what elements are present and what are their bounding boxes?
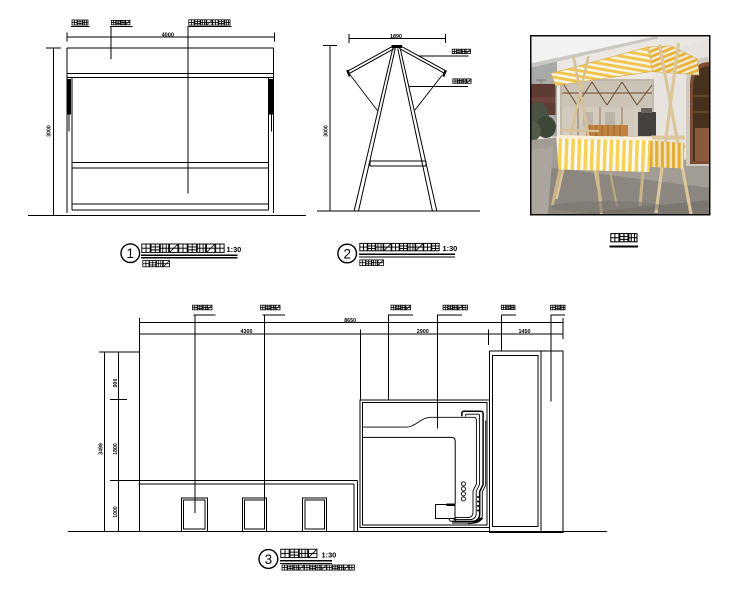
svg-text:1:30: 1:30 bbox=[227, 245, 242, 254]
svg-text:1890: 1890 bbox=[390, 34, 402, 40]
svg-text:1800: 1800 bbox=[113, 443, 119, 455]
svg-text:1:30: 1:30 bbox=[322, 550, 337, 559]
svg-text:2: 2 bbox=[343, 246, 351, 261]
svg-text:3000: 3000 bbox=[47, 125, 53, 137]
svg-text:1000: 1000 bbox=[113, 506, 119, 518]
svg-text:4300: 4300 bbox=[241, 329, 253, 335]
svg-text:900: 900 bbox=[113, 379, 119, 388]
svg-text:3: 3 bbox=[265, 552, 273, 567]
svg-text:1450: 1450 bbox=[519, 329, 531, 335]
svg-text:3000: 3000 bbox=[323, 125, 329, 137]
svg-text:3499: 3499 bbox=[98, 443, 104, 455]
svg-text:2900: 2900 bbox=[417, 329, 429, 335]
svg-text:8650: 8650 bbox=[344, 318, 356, 324]
svg-text:1: 1 bbox=[127, 246, 135, 261]
svg-text:1:30: 1:30 bbox=[443, 244, 458, 253]
svg-text:4000: 4000 bbox=[162, 32, 174, 38]
